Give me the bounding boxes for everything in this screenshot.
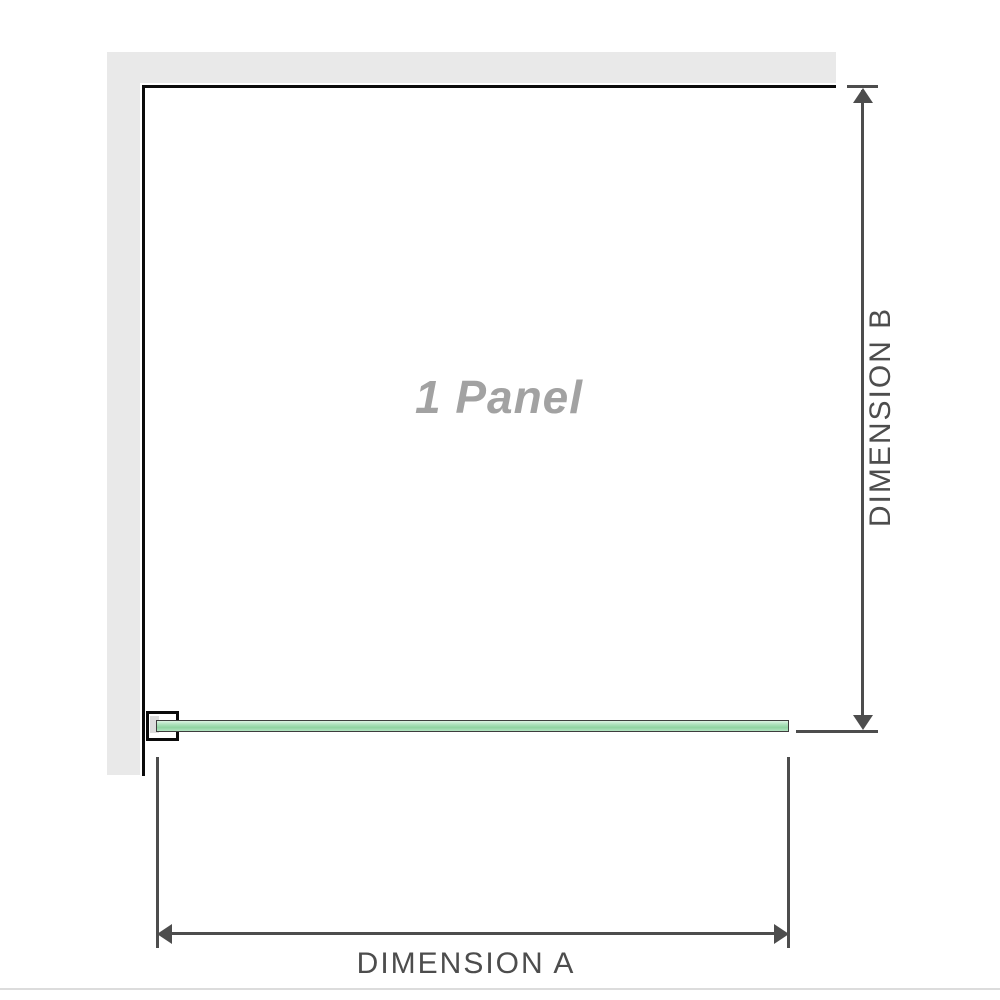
glass-panel [156, 720, 789, 732]
panel-count-label: 1 Panel [415, 370, 583, 424]
dimension-a-arrowhead-left-icon [157, 924, 172, 944]
dimension-b-bottom-tick [796, 730, 878, 733]
wall-left [107, 52, 140, 775]
dimension-b-arrowhead-down-icon [853, 715, 873, 730]
dimension-b-arrowhead-up-icon [853, 88, 873, 103]
dimension-a-right-extension-line [787, 757, 790, 948]
dimension-a-label: DIMENSION A [357, 947, 576, 981]
shower-panel-diagram: 1 Panel DIMENSION B DIMENSION A [0, 0, 1000, 1000]
bottom-divider-line [0, 988, 1000, 990]
dimension-a-arrowhead-right-icon [774, 924, 789, 944]
enclosure-top-line [142, 85, 836, 88]
enclosure-left-line [142, 85, 145, 776]
dimension-a-left-extension-line [156, 757, 159, 948]
dimension-a-line [165, 932, 781, 935]
dimension-b-label: DIMENSION B [864, 307, 898, 527]
wall-top [107, 52, 836, 83]
